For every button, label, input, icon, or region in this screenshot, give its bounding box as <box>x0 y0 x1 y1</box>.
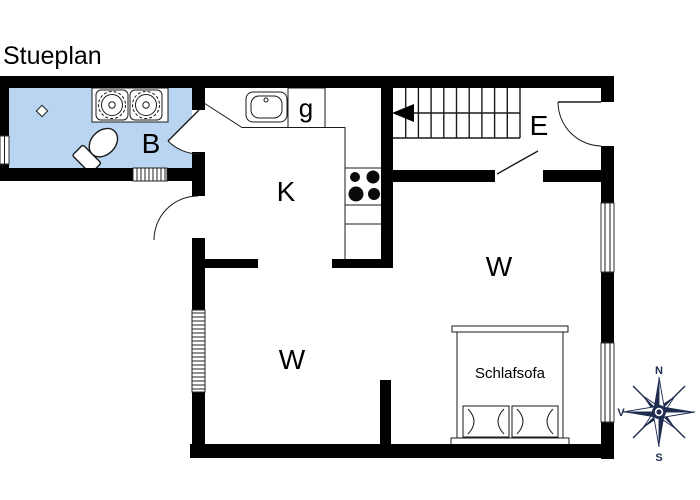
floorplan-page: Schlafsofa <box>0 0 700 500</box>
window-west-hatched <box>192 310 205 392</box>
compass-west-label: V <box>617 407 625 419</box>
room-label-living-upper: W <box>486 251 513 282</box>
room-label-bathroom: B <box>142 128 161 159</box>
floorplan-drawing: Schlafsofa <box>0 0 700 500</box>
room-label-pantry: g <box>299 93 313 123</box>
terrace-door-opening <box>192 196 205 238</box>
compass-north-label: N <box>655 365 663 377</box>
double-washbasin-icon <box>92 88 168 122</box>
kitchen-sink-icon <box>246 92 287 122</box>
window-bathroom-left <box>0 136 9 164</box>
window-right-lower <box>601 343 614 422</box>
room-label-entry: E <box>530 110 549 141</box>
page-background <box>0 0 700 500</box>
entry-door-opening <box>601 102 614 146</box>
room-label-living-lower: W <box>279 344 306 375</box>
page-title: Stueplan <box>3 42 102 70</box>
sofa-bed: Schlafsofa <box>451 326 569 447</box>
radiator-icon <box>133 168 167 181</box>
bathroom-door-opening <box>192 110 205 152</box>
window-right-upper <box>601 203 614 272</box>
sofa-bed-label: Schlafsofa <box>475 365 546 382</box>
compass-south-label: S <box>655 452 662 464</box>
room-label-kitchen: K <box>277 176 296 207</box>
